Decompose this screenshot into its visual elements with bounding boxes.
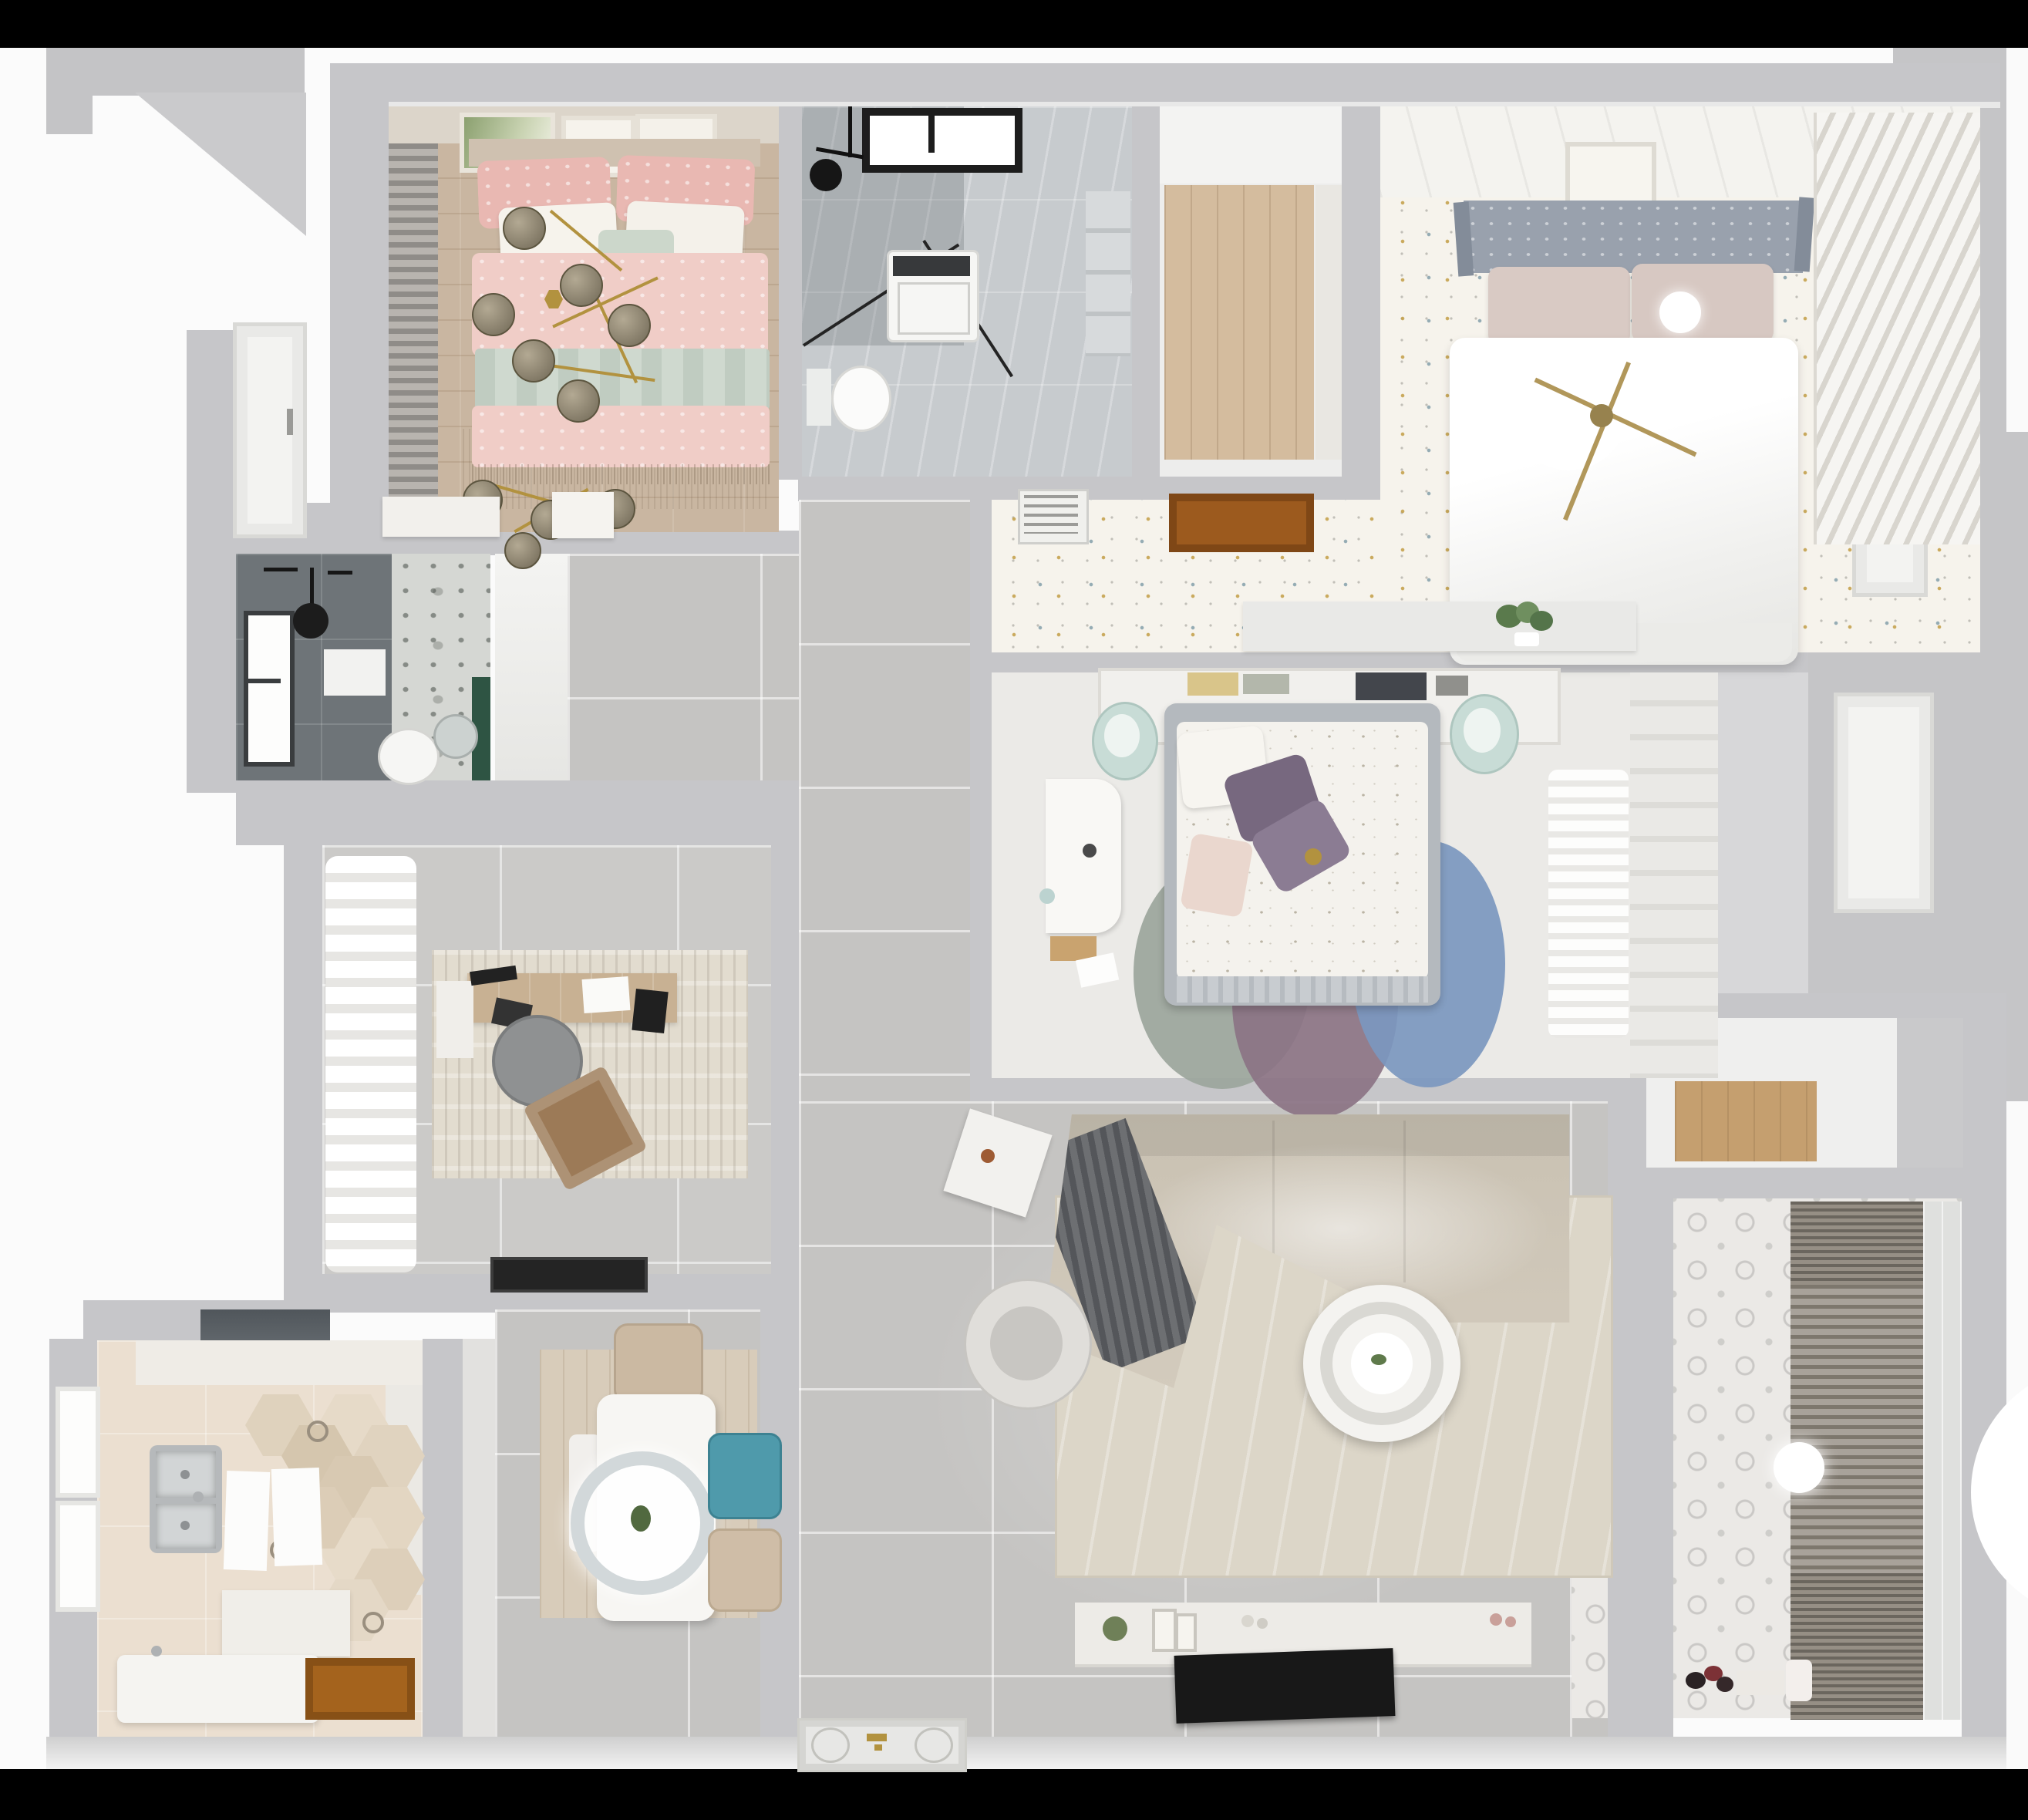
bath2-toilet <box>378 728 440 785</box>
floor-vent-slats <box>1024 495 1078 534</box>
closet-lit-edge <box>1316 185 1342 460</box>
storage-niche-gray <box>1897 1018 1963 1168</box>
kitchen-drain-1 <box>180 1470 190 1479</box>
kitchen-top-counter <box>136 1340 423 1385</box>
chandelier-globe-5 <box>512 339 555 383</box>
wall-study-north <box>284 814 799 845</box>
floor-plan <box>0 0 2028 1820</box>
mint-pouf-left-top <box>1104 714 1140 757</box>
side-door-handle <box>287 409 293 435</box>
shower-pipe <box>848 106 852 157</box>
console-deco-cup-1 <box>1490 1613 1502 1626</box>
watering-can <box>1786 1660 1812 1701</box>
washing-machine-panel <box>893 256 970 276</box>
chandelier2-globe-4 <box>504 532 541 569</box>
wall-dining-east <box>760 1309 799 1740</box>
dining-chair-beige <box>708 1528 782 1612</box>
exterior-shadow-top <box>73 48 305 96</box>
bed1-curtains <box>389 143 438 532</box>
balcony-small-mat <box>1737 1670 1784 1695</box>
console-deco-cup-2 <box>1505 1616 1516 1627</box>
bed2-half-wall <box>1243 602 1636 651</box>
plant-leaves-3 <box>1530 611 1553 631</box>
hall-niche-white <box>495 554 568 780</box>
dining-pendant-sprig <box>631 1505 651 1532</box>
entry-doormat-gold-dot <box>874 1744 882 1751</box>
wall-balcony-north <box>1619 1168 1962 1198</box>
mint-pouf-right-top <box>1464 708 1501 753</box>
bed3-desk-cup <box>1039 888 1055 904</box>
sofa-seam-1 <box>1272 1121 1275 1259</box>
apartment-side-door <box>233 322 307 538</box>
bed2-louver-wardrobe <box>1814 113 1980 544</box>
armchair-seat <box>990 1306 1063 1380</box>
bed3-gold-ornament <box>1305 848 1322 865</box>
entry-door-wood <box>305 1658 415 1720</box>
coffee-table-sprig <box>1371 1354 1386 1365</box>
door-right-lower <box>1834 693 1934 913</box>
hex-motif-3 <box>362 1612 384 1633</box>
study-paper <box>582 976 631 1013</box>
bed3-book-small <box>1436 676 1468 696</box>
kitchen-window-1 <box>56 1387 100 1498</box>
chandelier-globe-2 <box>560 264 603 307</box>
study-desk-return <box>436 981 473 1058</box>
wall-bed1-bath <box>779 106 802 480</box>
bed3-desk-grommet <box>1083 844 1097 858</box>
chandelier-globe-4 <box>608 304 651 347</box>
balcony-sphere-lamp <box>1774 1442 1824 1493</box>
bed3-book-dark <box>1356 672 1427 700</box>
kitchen-mat-1 <box>224 1471 270 1571</box>
kitchen-island <box>117 1655 319 1723</box>
bed3-book-gold <box>1187 672 1238 696</box>
kitchen-counter-l <box>222 1590 350 1657</box>
console-deco-frame-2 <box>1175 1613 1197 1652</box>
chandelier-globe-3 <box>472 293 515 336</box>
south-wall-band <box>46 1737 2006 1769</box>
wall-study-west <box>284 814 322 1286</box>
entry-doormat-gold-mark <box>867 1734 887 1741</box>
bed1-blanket <box>472 406 770 467</box>
wall-kitchen-dining-lit <box>463 1339 495 1740</box>
dining-chair-top <box>614 1323 703 1404</box>
study-doormat <box>490 1257 648 1293</box>
wall-corridor-east <box>970 500 992 1101</box>
console-deco-bottle-1 <box>1241 1615 1254 1627</box>
study-sheer-curtains <box>325 856 416 1272</box>
toilet1-tank <box>807 369 831 426</box>
bath1-window <box>862 108 1022 173</box>
bed2-headboard <box>1464 201 1803 273</box>
wall-bath-closet <box>1132 106 1160 480</box>
wall-balcony-east <box>1962 993 2006 1768</box>
console-deco-bottle-2 <box>1257 1618 1268 1629</box>
bed3-sheer-curtain <box>1548 770 1629 1038</box>
wall-west-outer <box>187 330 236 793</box>
fan-hub <box>1590 404 1613 427</box>
balcony-blinds-top <box>1791 1202 1923 1285</box>
wall-study-east <box>771 845 799 1286</box>
bed1-dresser-a <box>382 497 500 537</box>
bed3-blush-pillow <box>1180 833 1254 918</box>
plant-pot <box>1514 632 1539 646</box>
bed3-closet-fill <box>1630 672 1718 1078</box>
study-black-board <box>632 989 668 1033</box>
chandelier-globe-6 <box>557 379 600 423</box>
console-deco-plant <box>1103 1616 1127 1641</box>
storage-niche-wood-shelf <box>1675 1081 1817 1161</box>
hex-motif-1 <box>307 1421 328 1442</box>
floor-hall <box>568 554 799 780</box>
bath1-window-mullion <box>928 113 935 153</box>
bath1-shelf-niche <box>1086 191 1130 356</box>
bed2-sphere-lamp <box>1659 292 1701 333</box>
entry-doormat-arc-right <box>915 1727 953 1763</box>
island-faucet <box>151 1646 162 1657</box>
bed1-blanket-fringe <box>472 464 770 484</box>
bath2-mirror <box>433 714 478 759</box>
entry-doormat-arc-left <box>811 1727 850 1763</box>
bed3-footboard <box>1177 976 1428 1003</box>
floor-walkin-closet <box>1164 185 1314 460</box>
kitchen-faucet <box>193 1491 204 1502</box>
floor-corridor <box>799 500 970 1101</box>
kitchen-window-2 <box>56 1501 100 1612</box>
wall-bedroom-pink-west <box>330 63 389 557</box>
kitchen-mat-2 <box>271 1468 322 1566</box>
balcony-glass <box>1923 1202 1962 1720</box>
side-table-deco <box>981 1149 995 1163</box>
bed2-pillow-left <box>1488 267 1630 345</box>
toy-car-1 <box>1686 1672 1706 1689</box>
balcony-blinds-main <box>1791 1285 1923 1573</box>
bath2-window-bar <box>248 679 281 683</box>
wood-door-panel <box>1169 494 1314 552</box>
bath2-valve-2 <box>328 571 352 575</box>
tv-panel <box>1174 1648 1396 1724</box>
wall-closet-bed2 <box>1342 106 1380 511</box>
bed3-book-sage <box>1243 674 1289 694</box>
chandelier-globe-1 <box>503 207 546 250</box>
bed3-desk <box>1046 779 1121 933</box>
bed2-pillow-right <box>1632 264 1774 342</box>
toy-car-3 <box>1716 1677 1733 1692</box>
sofa-seam-2 <box>1403 1121 1406 1282</box>
bath2-shower-head <box>293 603 328 639</box>
bath2-wall-box <box>324 649 386 696</box>
console-deco-frame-1 <box>1152 1609 1177 1652</box>
bath2-valve-1 <box>264 568 298 571</box>
kitchen-drain-2 <box>180 1521 190 1530</box>
bath2-window <box>244 611 295 767</box>
washing-machine-lid <box>898 282 970 335</box>
closet-ceiling-band <box>1160 106 1342 184</box>
toilet1-bowl <box>831 366 891 432</box>
shower-head <box>810 159 842 191</box>
bed1-dresser-b <box>552 492 614 538</box>
dining-chair-teal <box>708 1433 782 1519</box>
